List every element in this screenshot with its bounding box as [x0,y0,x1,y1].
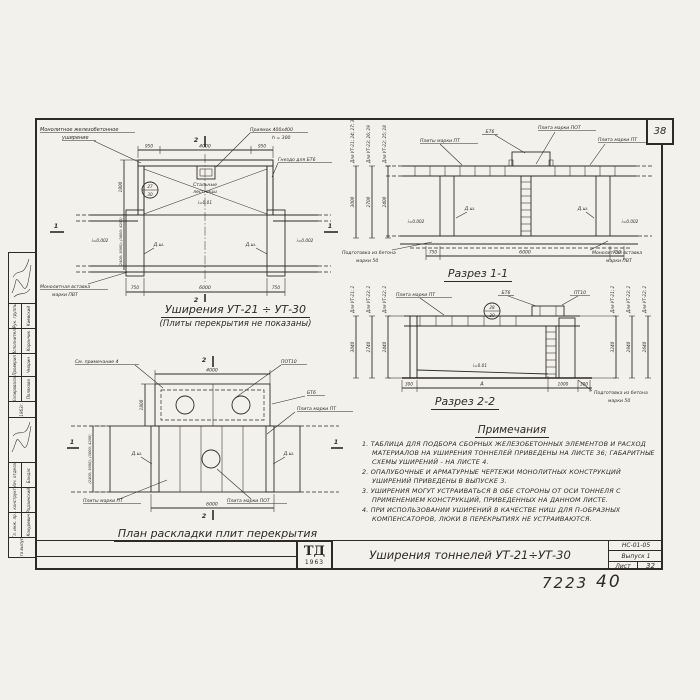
see-note-label: См. примечание 4 [75,359,119,365]
rot-label: Для УТ-23; 26; 29 [626,286,631,314]
detail-reference-bubble: 27 30 [142,182,158,198]
dim-6000: 6000 [519,250,531,256]
plan2-leader-labels: См. примечание 4 ПОТ10 БТ6 Плита марки П… [75,359,353,504]
rot-value: 2440 [382,341,387,352]
stamp-row: Нач. отдела Бандас [9,463,35,488]
stamp-row: Гл. инж. пр. Кокуревич [9,513,35,538]
slope-right-label: i=0.002 [297,238,314,243]
stamp-name: Киевский [27,306,31,326]
rot-value-2: 2700 [366,196,371,207]
dim-950-left: 950 [145,144,153,149]
plates-pt-label: Плиты марки ПТ [420,138,461,144]
stamp-role: Гл. инж. пр. [13,513,17,537]
plan-widening-subtitle: (Плиты перекрытия не показаны) [118,319,353,329]
section-1-1-title: Разрез 1-1 [418,267,538,280]
stamp-name: Кокуревич [27,514,31,536]
stamp-name: Радзинский [27,488,31,512]
section-mark-1-right: 1 [328,223,332,230]
stamp-row: Исполнитель Корончик [9,329,35,354]
stamp-role: Гл. конструктор [13,488,17,512]
plate-pot-label: Плита марки ПОТ [538,125,582,131]
plan-widening-drawing: 950 4000 950 Стальные лестницы i=0.01 [38,120,350,302]
signature-block [9,418,35,463]
pit-label-2: h = 300 [272,135,291,141]
sheet-title: Уширения тоннелей УТ-21÷УТ-30 [334,540,606,570]
section-mark-2-bottom: 2 [202,513,206,520]
dim-750-left: 750 [429,250,437,255]
stamp-row: Гл. конструктор Радзинский [9,488,35,513]
slope-label: i=0.01 [473,363,487,368]
slope-label: i=0.002 [408,219,425,224]
plate-pt-label: Плита марки ПТ [297,406,337,412]
stamp-name: Корончик [27,331,31,351]
title-block-mid-line [35,556,296,557]
rot-value-3: 2400 [382,196,387,207]
plan-slabs-drawing: 4000 См. примечание 4 ПОТ10 БТ6 [55,352,355,524]
stamp-name: Полякова [27,379,31,399]
stamp-row: Рук. группы Киевский [9,304,35,329]
sec22-detail-bubble: 28 30 [484,303,500,319]
rot-label-3: Для УТ-22; 25; 28 [382,125,387,164]
prep-label-1: Подготовка из бетона [594,390,648,396]
monolithic-widening-label-1: Монолитное железобетонное [40,127,118,133]
rot-value: 2640 [642,341,647,352]
sheet-number: 32 [638,562,663,570]
detail-ref-top: 28 [489,305,495,310]
dim-750-right: 750 [272,285,280,290]
insert-label-2: марки ПВТ [52,292,79,298]
notes-title: Примечания [362,424,662,436]
dim-950-right: 950 [258,144,266,149]
signature-scribbles [9,418,34,458]
dim-750-right: 750 [613,250,621,255]
rot-label: Для УТ-22; 25; 28 [382,286,387,314]
insert-label-1: Монолитная вставка [40,284,90,290]
slope-left-label: i=0.002 [92,238,109,243]
dim-4000: 4000 [206,368,218,374]
stamp-name: Чмарин [27,357,31,373]
plate-pt-label: Плита марки ПТ [598,137,638,143]
drawing-sheet: 38 Рук. группы Киевский Исполнитель Коро… [0,0,700,700]
plan-widening-walls [138,154,273,282]
rot-value: 2740 [366,341,371,352]
stamp-date-cell: Дата выпуска [9,538,35,557]
rot-value-1: 3000 [350,196,355,207]
section-mark-2-top: 2 [194,137,198,144]
rot-label: Для УТ-21; 24; 27; 30 [350,286,355,314]
dim-depth: 1800 [139,399,144,410]
plan-widening-title: Уширения УТ-21 ÷ УТ-30 (Плиты перекрытия… [118,303,353,329]
monolithic-widening-label-2: уширение [61,135,89,141]
pot10-label: ПОТ10 [281,359,297,365]
slope-label: i=0.002 [622,219,639,224]
joint-label-left: Д.ш. [153,242,165,248]
prep-label-2: марки 50 [356,258,378,264]
prep-label-2: марки 50 [608,398,630,404]
sec11-structure [386,152,652,248]
approval-stamp: Рук. группы Киевский Исполнитель Корончи… [8,252,36,558]
dim-750-left: 750 [131,285,139,290]
rot-label-1: Для УТ-21; 24; 27; 30 [350,120,355,164]
signature-block [9,253,35,304]
section-mark-2-top: 2 [202,357,206,364]
stamp-row: Копировала Полякова [9,377,35,402]
dim-tunnel-width: (2400; 3000); (3600; 4200) [119,217,123,267]
bt6-label: БТ6 [486,129,495,135]
dim-A: А [479,382,484,388]
dim-1000: 1000 [558,382,569,387]
rot-label: Для УТ-21; 24; 27; 30 [610,286,615,314]
stamp-name: Бандас [27,468,31,483]
plan2-section-marks: 2 2 1 1 [67,356,343,520]
section-2-2-title: Разрез 2-2 [405,395,525,408]
corner-number: 38 [654,126,667,137]
stamp-role: Проверил [13,355,17,376]
joint-label: Д.ш. [464,206,476,212]
organization-logo: ТД 1963 [296,540,333,570]
dim-6000: 6000 [206,502,218,508]
joint-label: Д.ш. [577,206,589,212]
section-mark-1-right: 1 [334,439,338,446]
dim-depth: 1800 [118,181,123,192]
bt6-label: БТ6 [502,290,511,296]
note-item-3: 3. Уширения могут устраиваться в обе сто… [362,487,662,505]
plate-pot-label: Плита марки ПОТ [227,498,271,504]
socket-label: Гнездо для БТ6 [278,157,316,163]
sec11-labels: Плиты марки ПТ БТ6 Плита марки ПОТ Плита… [342,125,654,264]
plan-bottom-dimension: 750 6000 750 [126,278,285,296]
section-1-1-drawing: Для УТ-21; 24; 27; 30 Для УТ-23; 26; 29 … [340,120,662,268]
corner-number-box: 38 [646,118,674,145]
doc-number: НС-01-05 [609,540,663,551]
plan-tunnel-walls [76,210,331,276]
plan-stairs-label: Стальные лестницы i=0.01 [192,182,217,205]
plan2-top-dimension: 4000 [155,368,270,385]
issue-number: Выпуск 1 [609,551,663,562]
note-item-2: 2. Опалубочные и арматурные чертежи моно… [362,468,662,486]
stamp-role: Исполнитель [13,329,17,353]
detail-ref-bottom: 30 [489,313,495,318]
rot-label: Для УТ-22; 25; 28 [642,286,647,314]
sec11-rotated-dimensions: Для УТ-21; 24; 27; 30 Для УТ-23; 26; 29 … [350,120,391,238]
logo-text: ТД [304,545,325,558]
joint-label-left: Д.ш. [131,451,143,457]
stamp-row: Проверил Чмарин [9,354,35,377]
sec22-rotated-dimensions-right: Для УТ-21; 24; 27; 30 Для УТ-23; 26; 29 … [610,286,651,378]
pit-label-1: Приямок 400x400 [250,127,293,133]
sec22-rotated-dimensions-left: Для УТ-21; 24; 27; 30 Для УТ-23; 26; 29 … [350,286,391,378]
inventory-number-right: 40 [596,572,622,592]
joint-label-right: Д.ш. [245,242,257,248]
sheet-label: Лист [609,562,638,570]
plan-joint-labels: Д.ш. Д.ш. i=0.002 i=0.002 [92,238,314,254]
rot-label-2: Для УТ-23; 26; 29 [366,125,371,164]
dim-tunnel-width: (2400; 3000); (3600; 4200) [88,434,92,484]
sheet-number-row: Лист 32 [609,562,663,570]
stamp-role: Рук. группы [13,304,17,328]
prep-label-1: Подготовка из бетона [342,250,396,256]
rot-value: 3040 [350,341,355,352]
plates-pt-label: Плиты марки ПТ [83,498,124,504]
dim-300-right: 300 [580,382,588,387]
inventory-number-left: 7223 [542,574,588,592]
section-2-2-drawing: Для УТ-21; 24; 27; 30 Для УТ-23; 26; 29 … [340,286,662,408]
plate-pt-label: Плита марки ПТ [396,292,436,298]
stamp-year-cell: 1963г. [9,402,35,418]
slope-center-label: i=0.01 [198,200,212,205]
section-mark-1-left: 1 [54,223,58,230]
rot-value: 2940 [626,341,631,352]
bt6-label: БТ6 [307,390,316,396]
dim-300-left: 300 [405,382,413,387]
note-item-4: 4. При использовании уширений в качестве… [362,506,662,524]
dim-6000: 6000 [199,285,211,291]
detail-ref-top: 27 [147,184,153,189]
title-block-right: НС-01-05 Выпуск 1 Лист 32 [608,540,663,570]
plan-slabs-title: План раскладки плит перекрытия [90,527,345,540]
stamp-year: 1963г. [20,403,24,417]
stamp-role: Нач. отдела [13,463,17,487]
plan2-dimensions: 6000 1800 (2400; 3000); (3600; 4200) [88,384,274,512]
section-mark-2-bottom: 2 [194,297,198,302]
plan2-structure [71,384,339,492]
plan-left-dimension: 1800 (2400; 3000); (3600; 4200) [118,160,138,270]
joint-label-right: Д.ш. [283,451,295,457]
stairs-label-2: лестницы [192,190,217,195]
pt10-label: ПТ10 [574,290,586,296]
stamp-date-label: Дата выпуска [20,538,24,557]
rot-label: Для УТ-23; 26; 29 [366,286,371,314]
stairs-label-1: Стальные [193,182,217,188]
notes-block: Примечания 1. Таблица для подбора сборны… [362,424,662,525]
sec22-structure [388,306,616,378]
section-mark-1-left: 1 [70,439,74,446]
signature-scribbles [9,253,34,299]
rot-value: 3240 [610,341,615,352]
stamp-role: Копировала [13,377,17,401]
detail-ref-bottom: 30 [147,192,153,197]
note-item-1: 1. Таблица для подбора сборных железобет… [362,440,662,467]
logo-year: 1963 [305,559,324,566]
